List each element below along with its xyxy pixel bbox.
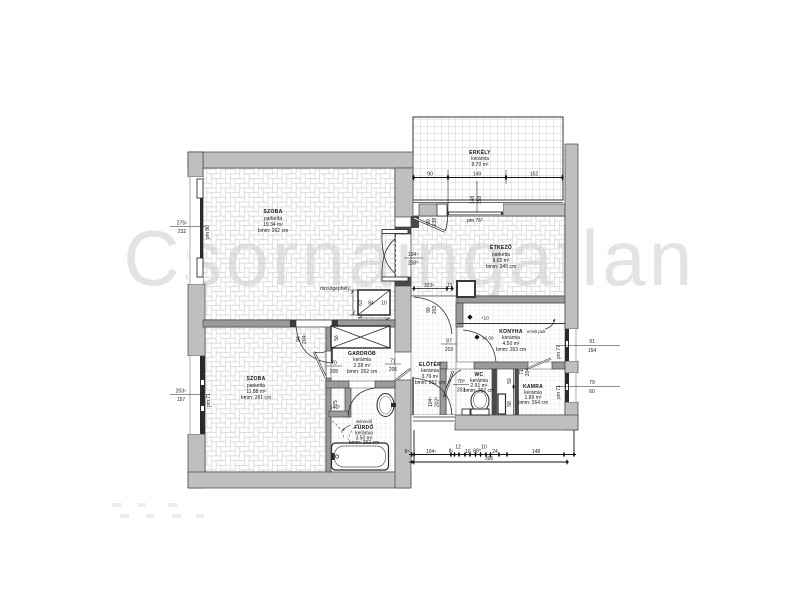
svg-text:63: 63: [358, 300, 364, 306]
svg-text:bmm: 262 cm: bmm: 262 cm: [415, 380, 445, 386]
svg-text:pm 77: pm 77: [556, 345, 562, 359]
svg-text:60: 60: [589, 389, 595, 395]
svg-text:8.70 m²: 8.70 m²: [472, 162, 489, 168]
svg-text:91: 91: [589, 339, 595, 345]
svg-text:204¹: 204¹: [302, 334, 308, 344]
svg-text:208⁰: 208⁰: [408, 261, 418, 267]
svg-text:90: 90: [427, 172, 433, 178]
svg-text:148: 148: [470, 196, 476, 205]
svg-text:104¹: 104¹: [428, 397, 434, 407]
svg-text:ÉTKEZŐ: ÉTKEZŐ: [490, 243, 512, 251]
svg-text:88⁰: 88⁰: [473, 449, 481, 455]
svg-text:204: 204: [525, 368, 531, 377]
svg-text:bmm: 262 cm: bmm: 262 cm: [258, 228, 288, 234]
svg-text:pm 76⁰: pm 76⁰: [467, 218, 483, 224]
svg-text:bmm: 262 cm: bmm: 262 cm: [347, 369, 377, 375]
svg-text:pm 71: pm 71: [556, 385, 562, 399]
svg-text:203⁵: 203⁵: [176, 389, 186, 395]
svg-text:bmm: 262 cm: bmm: 262 cm: [464, 388, 494, 394]
svg-text:275⁵: 275⁵: [177, 221, 187, 227]
svg-text:87: 87: [446, 339, 452, 345]
svg-text:elérendő: elérendő: [356, 419, 373, 424]
svg-text:SZOBA: SZOBA: [264, 209, 283, 215]
svg-text:mosógéphely: mosógéphely: [320, 286, 350, 292]
svg-text:24: 24: [492, 449, 498, 455]
svg-text:71: 71: [390, 359, 396, 365]
svg-text:pm 90: pm 90: [205, 225, 211, 239]
svg-text:79: 79: [589, 380, 595, 386]
svg-text:103⁵: 103⁵: [424, 283, 434, 289]
svg-text:232: 232: [178, 229, 187, 235]
svg-text:152: 152: [530, 172, 539, 178]
svg-text:emelt pult: emelt pult: [527, 329, 546, 334]
svg-text:206: 206: [389, 367, 398, 373]
svg-text:70⁰: 70⁰: [457, 379, 465, 385]
svg-text:84: 84: [368, 301, 374, 307]
svg-text:ERKÉLY: ERKÉLY: [469, 148, 491, 156]
svg-text:146⁰: 146⁰: [330, 405, 340, 411]
svg-text:6⁵: 6⁵: [405, 449, 410, 455]
svg-text:8⁵: 8⁵: [449, 449, 454, 455]
svg-text:134¹: 134¹: [408, 252, 418, 258]
svg-text:239: 239: [432, 218, 438, 227]
svg-text:SZOBA: SZOBA: [247, 376, 266, 382]
svg-text:203: 203: [445, 347, 454, 353]
svg-text:157: 157: [177, 397, 186, 403]
svg-text:bmm: 262 cm: bmm: 262 cm: [349, 440, 379, 446]
svg-text:GARDRÓB: GARDRÓB: [348, 349, 376, 357]
svg-text:pm 71: pm 71: [206, 393, 212, 407]
svg-text:159: 159: [477, 196, 483, 205]
svg-text:10: 10: [381, 301, 387, 307]
svg-text:bmm: 263 cm: bmm: 263 cm: [496, 347, 526, 353]
svg-text:16: 16: [465, 449, 471, 455]
svg-text:58: 58: [507, 401, 513, 407]
svg-text:148: 148: [532, 449, 541, 455]
svg-text:203: 203: [432, 306, 438, 315]
svg-text:154: 154: [588, 348, 597, 354]
svg-text:205: 205: [330, 369, 339, 375]
svg-text:bmm: 264 cm: bmm: 264 cm: [518, 400, 548, 406]
svg-text:±0.00: ±0.00: [482, 336, 494, 341]
svg-text:56: 56: [334, 335, 340, 341]
svg-text:bmm: 345 cm: bmm: 345 cm: [486, 264, 516, 270]
svg-text:70: 70: [331, 361, 337, 367]
svg-text:11: 11: [447, 283, 452, 289]
svg-text:ELŐTÉR: ELŐTÉR: [419, 360, 441, 368]
svg-text:202⁰: 202⁰: [435, 397, 441, 407]
svg-text:10: 10: [481, 445, 487, 451]
svg-text:104¹: 104¹: [426, 449, 436, 455]
svg-text:bmm: 261 cm: bmm: 261 cm: [241, 395, 271, 401]
svg-text:396: 396: [485, 456, 494, 462]
svg-text:+10: +10: [481, 316, 489, 321]
svg-text:59: 59: [507, 378, 513, 384]
svg-text:12: 12: [455, 445, 461, 451]
svg-text:149: 149: [473, 172, 482, 178]
